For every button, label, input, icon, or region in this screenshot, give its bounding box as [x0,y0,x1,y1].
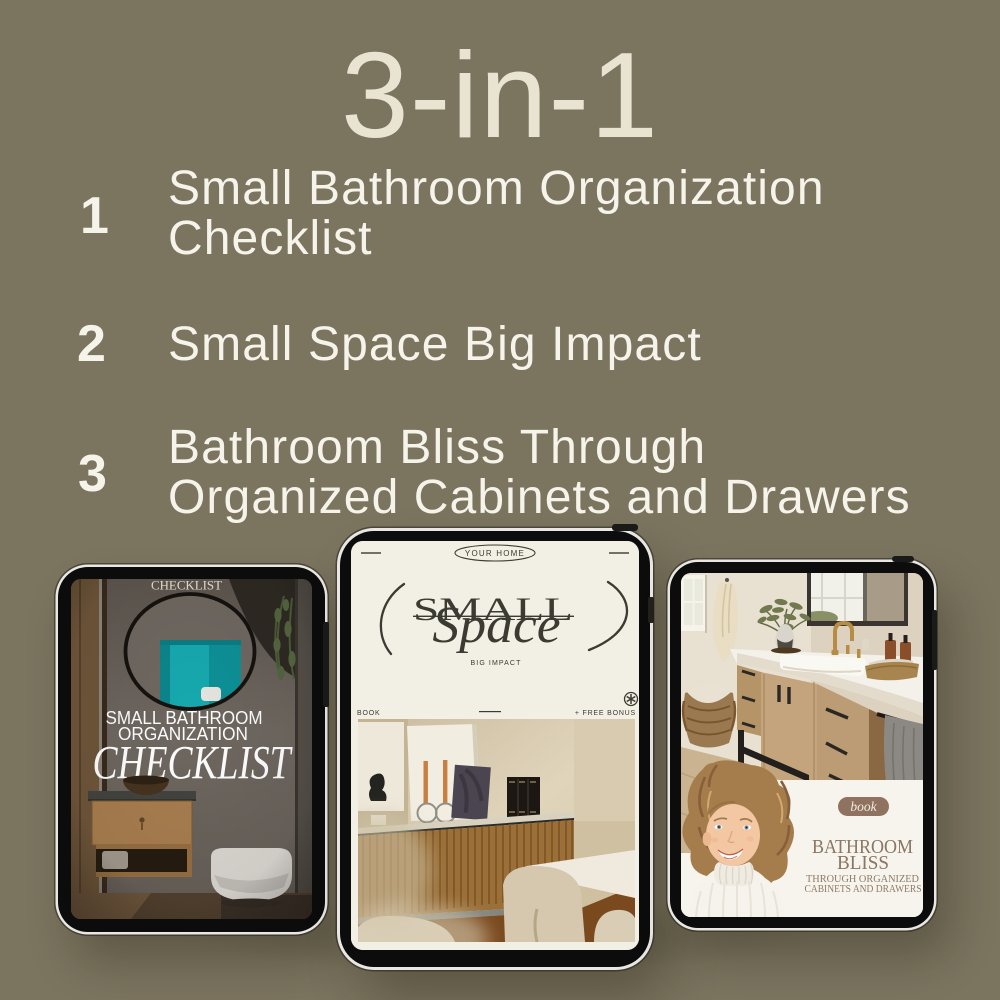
svg-text:BIG IMPACT: BIG IMPACT [471,660,522,667]
svg-text:book: book [850,799,877,814]
svg-text:BLISS: BLISS [837,853,889,874]
svg-text:+ FREE BONUS: + FREE BONUS [575,710,636,717]
svg-text:CABINETS AND DRAWERS: CABINETS AND DRAWERS [805,884,922,895]
svg-text:Space: Space [432,597,560,654]
svg-text:YOUR HOME: YOUR HOME [465,549,525,558]
svg-text:BOOK: BOOK [357,710,380,717]
